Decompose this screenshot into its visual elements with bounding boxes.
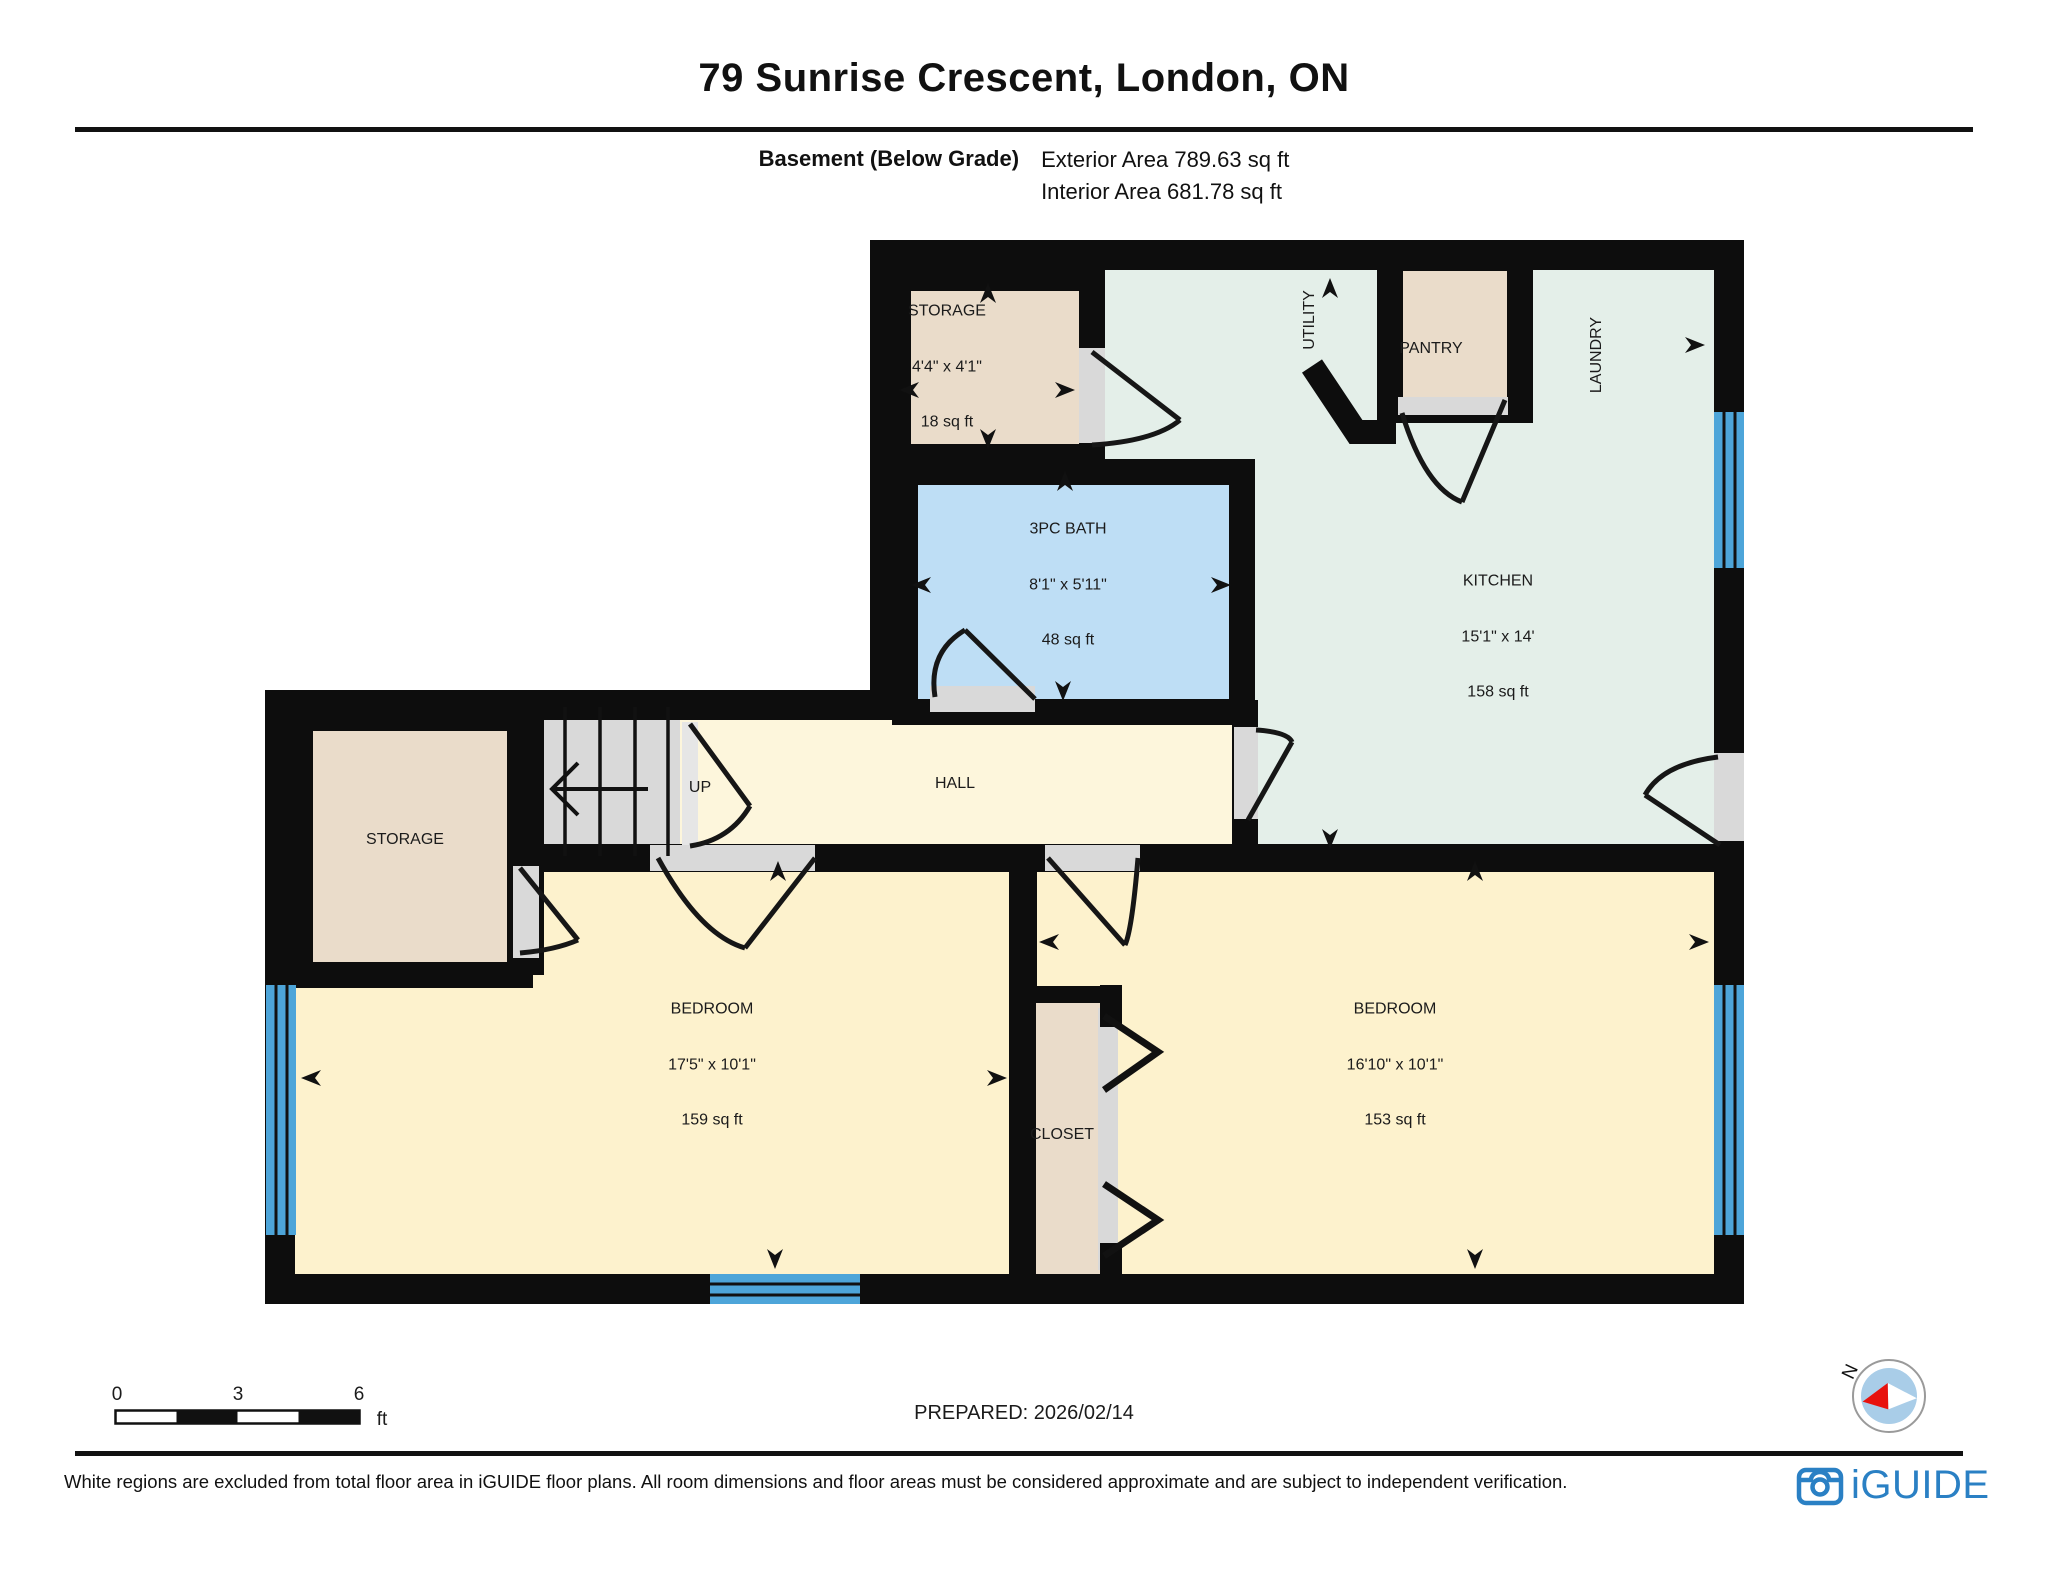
room-dimensions: 16'10" x 10'1" — [1347, 1056, 1444, 1075]
iguide-logo: iGUIDE — [1796, 1461, 1990, 1509]
room-label-hall: HALL — [935, 775, 975, 794]
iguide-camera-icon — [1796, 1461, 1844, 1509]
room-dimensions: 15'1" x 14' — [1461, 628, 1534, 647]
room-label-storage-top: STORAGE 4'4" x 4'1" 18 sq ft — [908, 265, 986, 469]
window — [1714, 985, 1744, 1235]
footer-separator — [75, 1451, 1963, 1456]
iguide-logo-text: iGUIDE — [1851, 1465, 1990, 1505]
stairwell — [530, 705, 680, 858]
room-name: STORAGE — [908, 302, 986, 321]
window — [710, 1274, 860, 1304]
room-label-kitchen: KITCHEN 15'1" x 14' 158 sq ft — [1461, 535, 1534, 739]
scale-tick-6: 6 — [354, 1386, 365, 1405]
floorplan-drawing — [0, 0, 2048, 1583]
room-name: BEDROOM — [1347, 1000, 1444, 1019]
room-name: 3PC BATH — [1029, 520, 1107, 539]
stairs-up-label: UP — [689, 779, 711, 798]
prepared-date: PREPARED: 2026/02/14 — [914, 1404, 1134, 1423]
room-label-closet: CLOSET — [1030, 1126, 1094, 1145]
room-area: 159 sq ft — [668, 1111, 756, 1130]
room-label-storage-left: STORAGE — [366, 831, 444, 850]
room-label-laundry: LAUNDRY — [1588, 317, 1607, 393]
floorplan-page: 79 Sunrise Crescent, London, ON Basement… — [0, 0, 2048, 1583]
pantry-room — [1390, 258, 1520, 410]
room-label-bedroom-left: BEDROOM 17'5" x 10'1" 159 sq ft — [668, 963, 756, 1167]
room-name: KITCHEN — [1461, 572, 1534, 591]
room-name: BEDROOM — [668, 1000, 756, 1019]
room-label-utility: UTILITY — [1301, 290, 1320, 350]
footer-disclaimer: White regions are excluded from total fl… — [64, 1471, 1567, 1493]
room-label-bath: 3PC BATH 8'1" x 5'11" 48 sq ft — [1029, 483, 1107, 687]
room-label-bedroom-right: BEDROOM 16'10" x 10'1" 153 sq ft — [1347, 963, 1444, 1167]
window — [266, 985, 296, 1235]
room-area: 48 sq ft — [1029, 631, 1107, 650]
window — [1714, 412, 1744, 568]
room-area: 18 sq ft — [908, 413, 986, 432]
room-dimensions: 17'5" x 10'1" — [668, 1056, 756, 1075]
scale-tick-0: 0 — [112, 1386, 123, 1405]
room-area: 153 sq ft — [1347, 1111, 1444, 1130]
scale-unit: ft — [377, 1411, 388, 1430]
room-dimensions: 4'4" x 4'1" — [908, 358, 986, 377]
scale-bar — [116, 1411, 360, 1424]
scale-tick-3: 3 — [233, 1386, 244, 1405]
room-label-pantry: PANTRY — [1399, 340, 1462, 359]
compass-icon — [1853, 1360, 1925, 1432]
room-dimensions: 8'1" x 5'11" — [1029, 576, 1107, 595]
room-area: 158 sq ft — [1461, 683, 1534, 702]
